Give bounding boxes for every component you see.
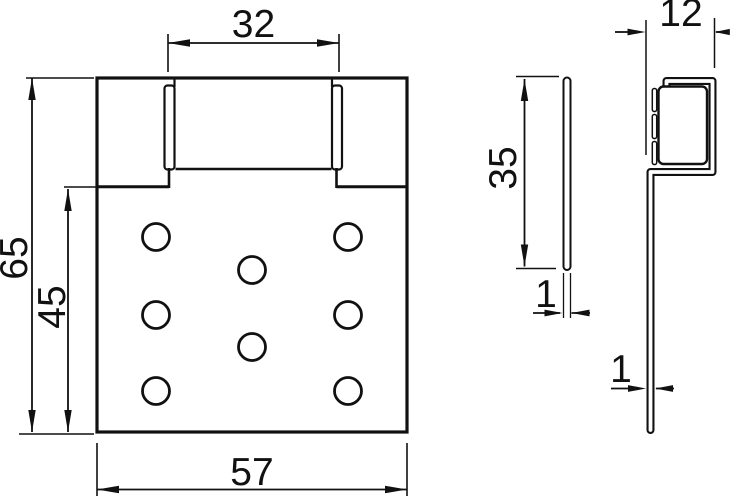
mounting-hole xyxy=(143,224,170,251)
lip-segment xyxy=(652,142,656,165)
dim-bracket-thickness: 1 xyxy=(610,348,674,392)
dim-total-height: 65 xyxy=(0,78,94,434)
mounting-hole xyxy=(239,257,266,284)
mounting-hole xyxy=(143,378,170,405)
mounting-hole xyxy=(143,302,170,329)
arrowhead xyxy=(628,29,646,36)
front-view: 32 65 45 57 xyxy=(0,3,409,496)
arrowhead xyxy=(572,310,590,317)
dim-bracket-width-label: 12 xyxy=(659,0,702,35)
dim-total-width: 57 xyxy=(97,443,407,496)
dim-plate-profile-height-label: 35 xyxy=(482,146,525,189)
tab-slot-left xyxy=(165,86,175,170)
dim-plate-thickness: 1 xyxy=(533,273,590,318)
arrowhead xyxy=(655,385,673,392)
arrowhead xyxy=(715,29,730,35)
side-plate-view: 35 1 xyxy=(482,77,590,319)
dim-tab-width: 32 xyxy=(168,3,339,72)
technical-drawing: 32 65 45 57 35 xyxy=(0,0,730,497)
plate-outline xyxy=(97,78,407,432)
technical-drawing-canvas: 32 65 45 57 35 xyxy=(0,0,730,497)
tab-slot-right xyxy=(332,86,342,170)
dim-plate-height: 45 xyxy=(31,187,96,432)
mounting-hole xyxy=(239,334,266,361)
dim-plate-profile-height: 35 xyxy=(482,77,559,269)
dim-plate-thickness-label: 1 xyxy=(535,273,557,316)
mounting-hole xyxy=(335,302,362,329)
dim-bracket-thickness-label: 1 xyxy=(610,348,632,391)
dim-plate-height-label: 45 xyxy=(31,285,74,328)
rail-cross-section xyxy=(659,87,708,165)
dim-tab-width-label: 32 xyxy=(232,3,275,46)
lip-segment xyxy=(652,115,656,139)
flat-plate-profile xyxy=(564,78,571,271)
mounting-hole xyxy=(335,224,362,251)
dim-total-height-label: 65 xyxy=(0,236,36,279)
side-bracket-view: 12 1 xyxy=(610,0,730,430)
mounting-hole xyxy=(335,378,362,405)
lip-segment xyxy=(652,89,656,112)
dim-total-width-label: 57 xyxy=(230,451,273,494)
